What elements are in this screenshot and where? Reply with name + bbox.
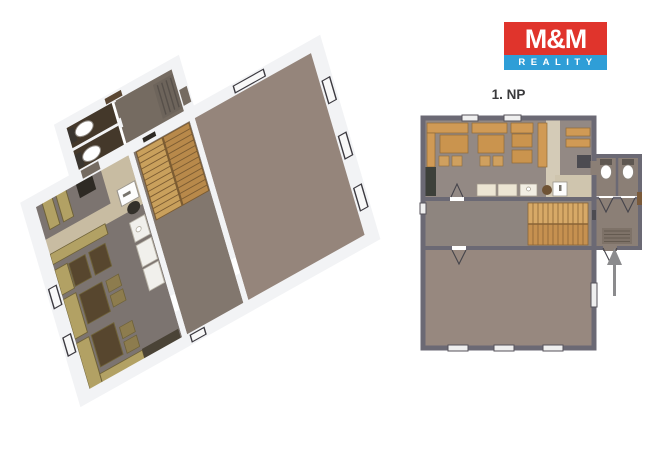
mm-reality-logo: M&M REALITY	[504, 22, 607, 70]
floorplan-graphics	[0, 0, 662, 468]
logo-brand-text: M&M	[504, 22, 607, 55]
floor-plan-2d-view	[420, 115, 642, 351]
floor-label: 1. NP	[423, 87, 594, 102]
floorplan-listing-image: M&M REALITY 1. NP	[0, 0, 662, 468]
floor-plan-3d-view	[8, 0, 377, 403]
logo-subbrand-text: REALITY	[504, 55, 607, 70]
